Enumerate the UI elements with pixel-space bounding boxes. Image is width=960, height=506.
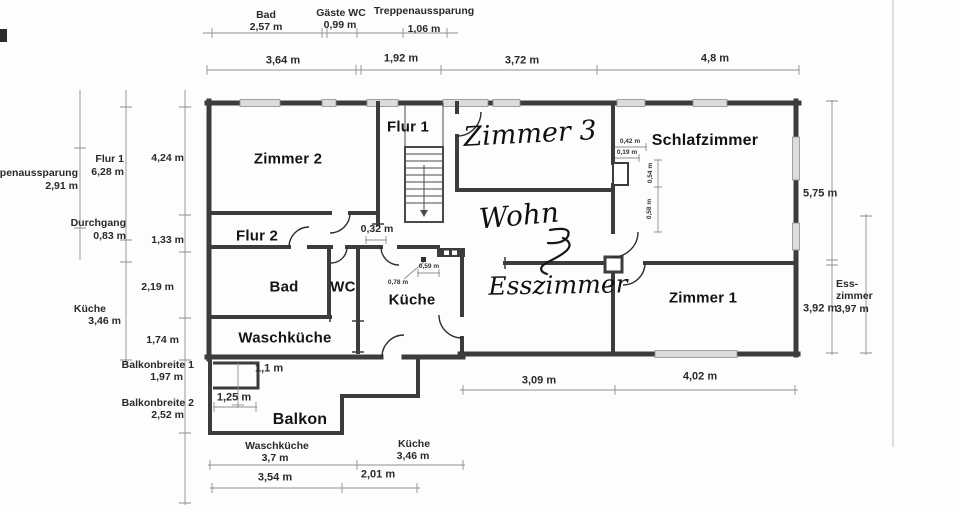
room-label-flur2: Flur 2: [236, 229, 278, 244]
dim-inner-054: 0,54 m: [648, 163, 655, 183]
dim-left-flur1-label: Flur 1: [95, 154, 124, 165]
dim-left-flur1-value: 6,28 m: [91, 167, 124, 178]
room-label-flur1: Flur 1: [387, 120, 429, 135]
handwritten-arrow: [541, 229, 569, 274]
dim-width-1: 3,64 m: [266, 56, 300, 67]
room-label-bad: Bad: [270, 280, 299, 295]
dim-bottom-kueche-label: Küche: [398, 439, 430, 450]
dim-inner-059: 0,59 m: [419, 264, 439, 271]
dim-left-balkonbreite1-label: Balkonbreite 1: [122, 360, 194, 371]
dim-bottom-kueche-value: 3,46 m: [397, 451, 430, 462]
dim-bottom-wasch-label: Waschküche: [245, 441, 309, 452]
dim-balkon-11: 1,1 m: [255, 364, 283, 375]
dim-left-219: 2,19 m: [141, 282, 174, 293]
dim-right-esszimmer-line2: zimmer: [836, 291, 873, 302]
dim-gaeste-wc-value: 0,99 m: [324, 20, 357, 31]
dim-left-balkonbreite1-value: 1,97 m: [150, 372, 183, 383]
dim-bad-label: Bad: [256, 10, 276, 21]
dim-left-durchgang-value: 0,83 m: [93, 231, 126, 242]
dim-left-treppe-value: 2,91 m: [45, 181, 78, 192]
dim-inner-058: 0,58 m: [647, 199, 654, 219]
dim-inner-032: 0,32 m: [361, 224, 394, 235]
dim-gaeste-wc-label: Gäste WC: [316, 8, 366, 19]
dim-width-3: 3,72 m: [505, 56, 539, 67]
dim-left-balkonbreite2-value: 2,52 m: [151, 410, 184, 421]
dim-bad-value: 2,57 m: [250, 22, 283, 33]
dim-width-4: 4,8 m: [701, 54, 729, 65]
dim-treppenaussparung-label: Treppenaussparung: [374, 6, 474, 17]
dim-right-392: 3,92 m: [803, 304, 837, 315]
dim-right-esszimmer-line1: Ess-: [836, 279, 858, 290]
dim-inner-019: 0,19 m: [617, 150, 637, 157]
room-label-schlafzimmer: Schlafzimmer: [652, 133, 758, 149]
dim-left-424: 4,24 m: [151, 153, 184, 164]
room-label-zimmer3-handwritten: Zimmer 3: [463, 117, 597, 151]
room-label-esszimmer-handwritten: Esszimmer: [488, 271, 628, 298]
dim-inner-078: 0,78 m: [388, 280, 408, 287]
dim-left-treppe-label: ppenaussparung: [0, 168, 78, 179]
scan-artifacts: [0, 0, 893, 447]
dim-bottom-309: 3,09 m: [522, 376, 556, 387]
dim-bottom-402: 4,02 m: [683, 372, 717, 383]
room-label-zimmer1: Zimmer 1: [669, 291, 737, 306]
dim-treppenaussparung-value: 1,06 m: [408, 24, 441, 35]
dim-bottom-wasch-value: 3,7 m: [262, 453, 289, 464]
room-label-waschkueche: Waschküche: [238, 331, 331, 346]
dim-width-2: 1,92 m: [384, 54, 418, 65]
room-label-wc: WC: [330, 280, 355, 295]
dim-left-kueche-label: Küche: [74, 304, 106, 315]
floor-plan-drawing: [0, 0, 960, 506]
room-label-zimmer2: Zimmer 2: [254, 152, 322, 167]
dim-left-kueche-value: 3,46 m: [88, 316, 121, 327]
dim-bottom-354: 3,54 m: [258, 473, 292, 484]
dim-inner-042: 0,42 m: [620, 139, 640, 146]
dim-left-balkonbreite2-label: Balkonbreite 2: [122, 398, 194, 409]
dim-bottom-201: 2,01 m: [361, 470, 395, 481]
room-label-wohn-handwritten: Wohn: [478, 199, 560, 234]
dim-left-durchgang-label: Durchgang: [71, 218, 126, 229]
dim-balkon-125: 1,25 m: [217, 393, 251, 404]
floor-plan-page: Zimmer 2 Flur 1 Zimmer 3 Schlafzimmer Fl…: [0, 0, 960, 506]
dim-right-esszimmer-value: 3,97 m: [836, 304, 869, 315]
room-label-kueche: Küche: [389, 293, 436, 308]
dim-left-174: 1,74 m: [146, 335, 179, 346]
dim-right-575: 5,75 m: [803, 189, 837, 200]
room-label-balkon: Balkon: [273, 412, 328, 428]
dim-left-133: 1,33 m: [151, 235, 184, 246]
